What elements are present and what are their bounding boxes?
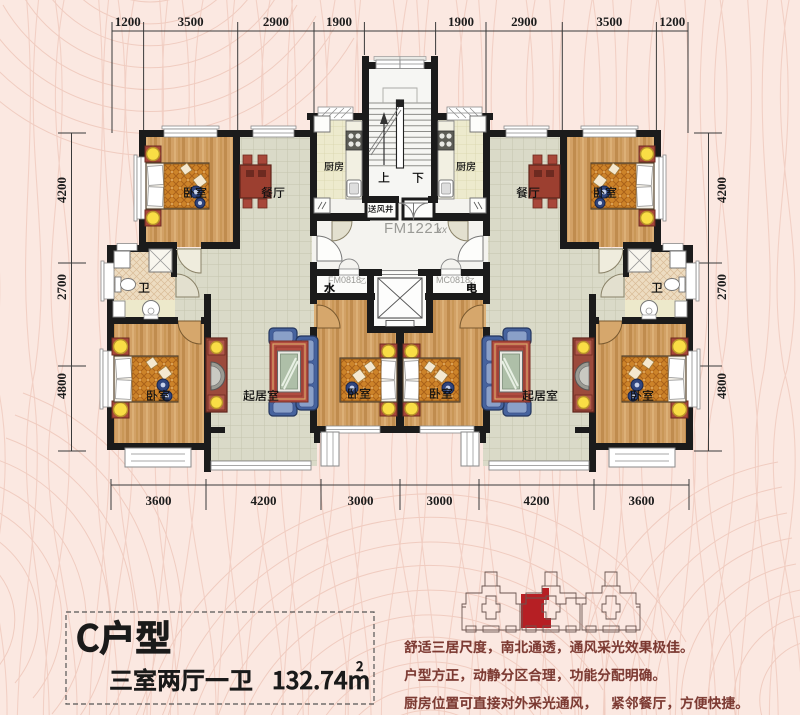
svg-text:3000: 3000	[348, 493, 374, 508]
svg-text:乙: 乙	[360, 277, 367, 285]
svg-text:FM0818: FM0818	[328, 275, 361, 285]
svg-text:乙: 乙	[469, 277, 476, 285]
svg-text:3600: 3600	[629, 493, 655, 508]
svg-text:4200: 4200	[714, 177, 729, 203]
svg-text:3600: 3600	[146, 493, 172, 508]
svg-text:2700: 2700	[714, 274, 729, 300]
svg-text:1200: 1200	[659, 14, 685, 29]
svg-text:4200: 4200	[54, 177, 69, 203]
svg-text:4800: 4800	[54, 373, 69, 399]
svg-text:2700: 2700	[54, 274, 69, 300]
svg-text:4800: 4800	[714, 373, 729, 399]
svg-text:3500: 3500	[178, 14, 204, 29]
svg-text:xx: xx	[436, 225, 448, 236]
svg-text:3000: 3000	[427, 493, 453, 508]
svg-text:2900: 2900	[511, 14, 537, 29]
svg-text:FM1221: FM1221	[384, 220, 442, 237]
svg-text:4200: 4200	[251, 493, 277, 508]
svg-text:1900: 1900	[326, 14, 352, 29]
svg-text:3500: 3500	[596, 14, 622, 29]
svg-text:MC0818: MC0818	[436, 275, 470, 285]
svg-text:1900: 1900	[448, 14, 474, 29]
svg-text:1200: 1200	[115, 14, 141, 29]
svg-text:4200: 4200	[524, 493, 550, 508]
svg-text:2900: 2900	[263, 14, 289, 29]
